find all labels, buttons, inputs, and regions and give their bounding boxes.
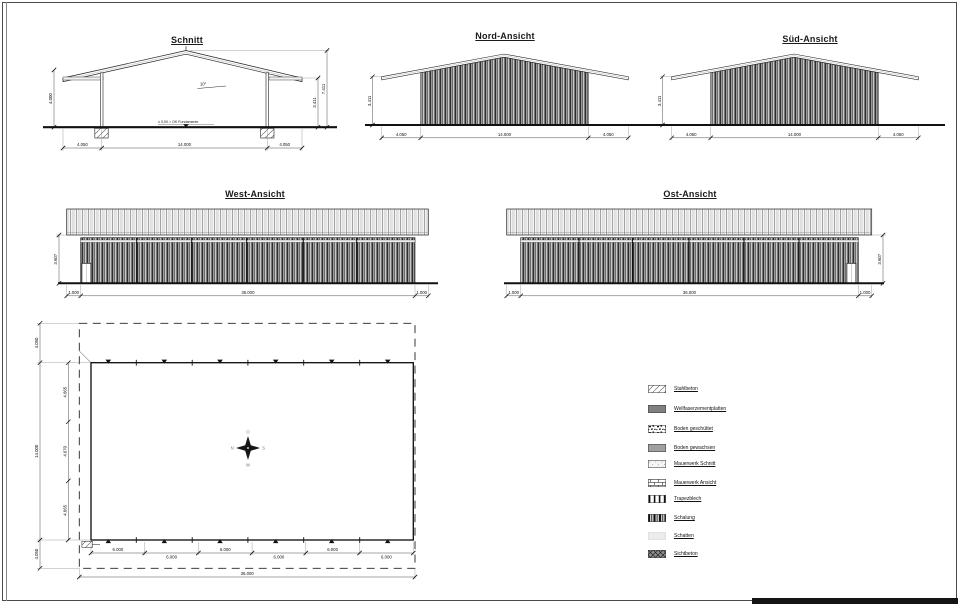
dim-label: 6.000: [274, 555, 285, 560]
dim-label: 4.050: [34, 337, 39, 348]
dim-label: 1.000: [416, 290, 427, 295]
legend-label: Mauerwerk Ansicht: [674, 480, 716, 486]
dimension-bottom-segments: 6.000 6.000 6.000 6.000 6.000 6.000: [89, 542, 416, 560]
legend-label: Schatten: [674, 533, 694, 539]
title-sued-ansicht: Süd-Ansicht: [782, 34, 837, 44]
level-label: ± 0,00 = OK Fundamente: [158, 120, 198, 124]
dim-label: 6.000: [220, 547, 231, 552]
legend-swatch-mauerwerk-schnitt: [648, 460, 666, 468]
dim-label: 4.050: [279, 142, 290, 147]
section-footings: [95, 128, 274, 138]
dim-label: 1.000: [860, 290, 871, 295]
legend-swatch-boden-geschuettet: [648, 425, 666, 433]
legend-swatch-sichtbeton: [648, 550, 666, 558]
dim-label: 6.000: [327, 547, 338, 552]
corner-detail: [79, 351, 91, 363]
door: [82, 263, 91, 283]
dim-label: 4.050: [686, 132, 697, 137]
dim-label: 3.411: [367, 95, 372, 106]
legend-label: Mauerwerk Schnitt: [674, 461, 715, 467]
dimension-right: 7.411 3.411: [190, 48, 329, 129]
title-nord-ansicht: Nord-Ansicht: [475, 31, 534, 41]
legend-swatch-boden-gewachsen: [648, 444, 666, 452]
view-ost-ansicht: 3.607 1.000 36.000 1.000: [498, 195, 890, 307]
dim-label: 4.050: [77, 142, 88, 147]
dim-label: 6.000: [113, 547, 124, 552]
dim-label: 6.000: [166, 555, 177, 560]
dim-label: 36.000: [241, 571, 255, 576]
legend-swatch-schalung: [648, 514, 666, 522]
legend-label: Stahlbeton: [674, 386, 698, 392]
dimension-bottom-total: 36.000: [77, 568, 417, 579]
legend-item-mauerwerk-schnitt: Mauerwerk Schnitt: [648, 459, 715, 469]
dim-label: 4.050: [34, 548, 39, 559]
dimension-left-outer: 4.050 14.000 4.050: [34, 321, 91, 570]
title-schnitt: Schnitt: [171, 35, 203, 45]
legend-swatch-schatten: [648, 532, 666, 540]
dim-label: 6.000: [381, 555, 392, 560]
hall-walls: [91, 363, 413, 540]
dimension-left: 3.411: [657, 75, 672, 128]
dim-label: 14.000: [788, 132, 802, 137]
view-nord-ansicht: 4.050 14.000 4.050 3.411: [365, 48, 655, 143]
view-schnitt: ± 0,00 = OK Fundamente 10° 4.050 14.000 …: [40, 45, 340, 160]
dimension-bottom: 4.050 14.000 4.050: [380, 127, 631, 141]
legend-item-trapezblech: Trapezblech: [648, 494, 701, 504]
dim-label: 36.000: [683, 290, 697, 295]
legend-item-boden-geschuettet: Boden geschüttet: [648, 424, 713, 434]
dim-label: 4.000: [48, 93, 53, 104]
compass-letter-right: S: [262, 446, 265, 451]
dimension-bottom: 1.000 36.000 1.000: [505, 285, 874, 298]
dim-label: 3.411: [312, 97, 317, 108]
dim-label: 14.000: [34, 444, 39, 458]
legend-item-stahlbeton: Stahlbeton: [648, 384, 698, 394]
legend-label: Wellfaserzementplatten: [674, 406, 726, 412]
dimension-right: 3.607: [872, 233, 886, 286]
dim-label: 3.411: [657, 95, 662, 106]
sheet-border-inner: [6, 2, 7, 601]
dimension-left: 3.411: [367, 75, 382, 128]
dim-label: 7.411: [321, 83, 326, 94]
legend-swatch-wellplatten: [648, 405, 666, 413]
slope-annotation: 10°: [198, 82, 227, 89]
legend-swatch-stahlbeton: [648, 385, 666, 393]
dim-label: 4.050: [396, 132, 407, 137]
legend-item-schatten: Schatten: [648, 531, 694, 541]
dim-label: 36.000: [241, 290, 255, 295]
wall-rail: [81, 240, 415, 242]
title-block-edge: [752, 598, 958, 604]
dim-label: 3.607: [53, 253, 58, 264]
legend-item-boden-gewachsen: Boden gewachsen: [648, 443, 715, 453]
dim-label: 4.665: [62, 504, 67, 515]
dim-label: 4.050: [893, 132, 904, 137]
drawing-sheet: Schnitt Nord-Ansicht Süd-Ansicht West-An…: [0, 0, 960, 607]
legend-swatch-mauerwerk-ansicht: [648, 479, 666, 487]
compass-letter-bottom: W: [246, 463, 250, 468]
dimension-bottom: 1.000 36.000 1.000: [65, 285, 431, 298]
legend-label: Sichtbeton: [674, 551, 698, 557]
dim-label: 14.000: [498, 132, 512, 137]
dimension-left: 4.000: [48, 68, 56, 130]
roof-band: [67, 209, 429, 235]
dimension-left-inner: 4.665 4.670 4.665: [62, 361, 70, 543]
legend-item-sichtbeton: Sichtbeton: [648, 549, 698, 559]
view-grundriss: O S W N 4.050 14.000 4.050 4.665 4.670 4…: [30, 315, 455, 595]
dim-label: 1.000: [508, 290, 519, 295]
roof-band: [507, 209, 872, 235]
dim-label: 1.000: [68, 290, 79, 295]
legend-swatch-trapezblech: [648, 495, 666, 503]
compass-letter-left: N: [231, 446, 234, 451]
view-sued-ansicht: 4.050 14.000 4.050 3.411: [655, 48, 945, 143]
door: [847, 263, 856, 283]
dim-label: 3.607: [877, 253, 882, 264]
slope-label: 10°: [200, 82, 207, 87]
legend-item-mauerwerk-ansicht: Mauerwerk Ansicht: [648, 478, 716, 488]
legend-item-schalung: Schalung: [648, 513, 695, 523]
legend-label: Boden geschüttet: [674, 426, 713, 432]
dim-label: 4.670: [62, 445, 67, 456]
legend-label: Boden gewachsen: [674, 445, 715, 451]
dimension-bottom: 4.050 14.000 4.050: [670, 127, 921, 141]
dim-label: 4.665: [62, 386, 67, 397]
legend-item-wellplatten: Wellfaserzementplatten: [648, 404, 726, 414]
dimension-left: 3.607: [53, 233, 66, 286]
dim-label: 14.000: [178, 142, 192, 147]
legend-label: Trapezblech: [674, 496, 701, 502]
dim-label: 4.050: [603, 132, 614, 137]
legend-label: Schalung: [674, 515, 695, 521]
view-west-ansicht: 3.607 1.000 36.000 1.000: [52, 195, 444, 307]
wall-cladding: [81, 238, 415, 284]
